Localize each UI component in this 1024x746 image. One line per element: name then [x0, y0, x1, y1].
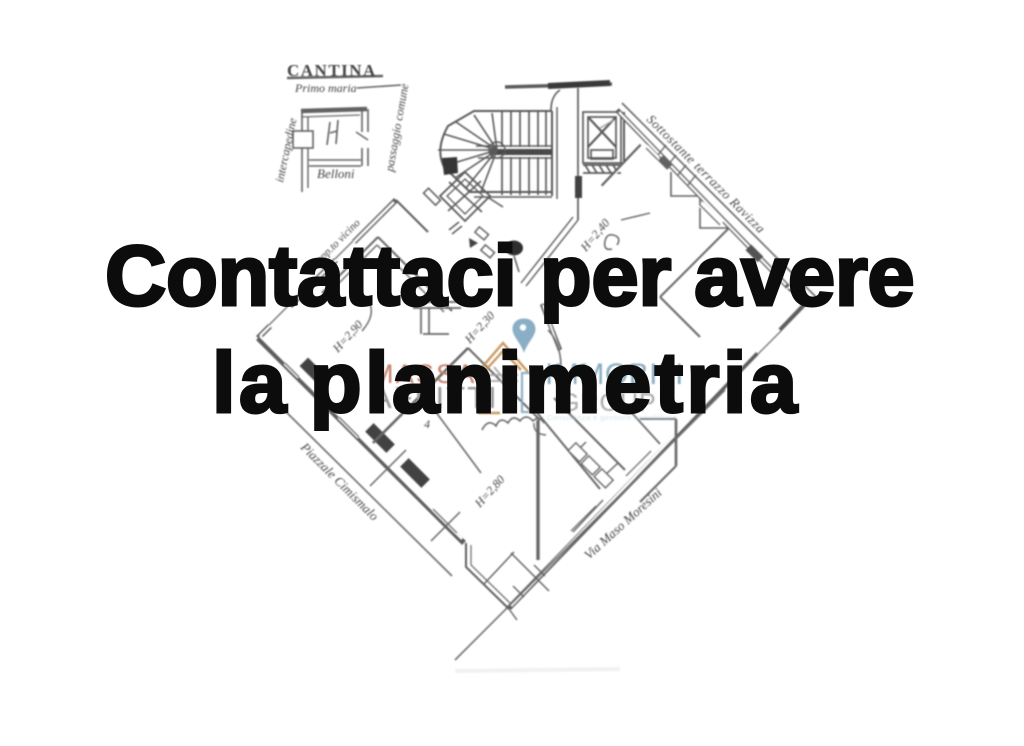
svg-text:Belloni: Belloni — [317, 166, 355, 181]
svg-text:Primo maria: Primo maria — [294, 81, 357, 95]
svg-text:intercapedine: intercapedine — [272, 116, 299, 184]
svg-text:passaggio comune: passaggio comune — [382, 82, 412, 174]
svg-text:H=2,80: H=2,80 — [471, 473, 507, 511]
svg-text:CANTINA: CANTINA — [287, 61, 377, 80]
svg-text:Sottostante terrazzo Ravizza: Sottostante terrazzo Ravizza — [644, 112, 769, 237]
